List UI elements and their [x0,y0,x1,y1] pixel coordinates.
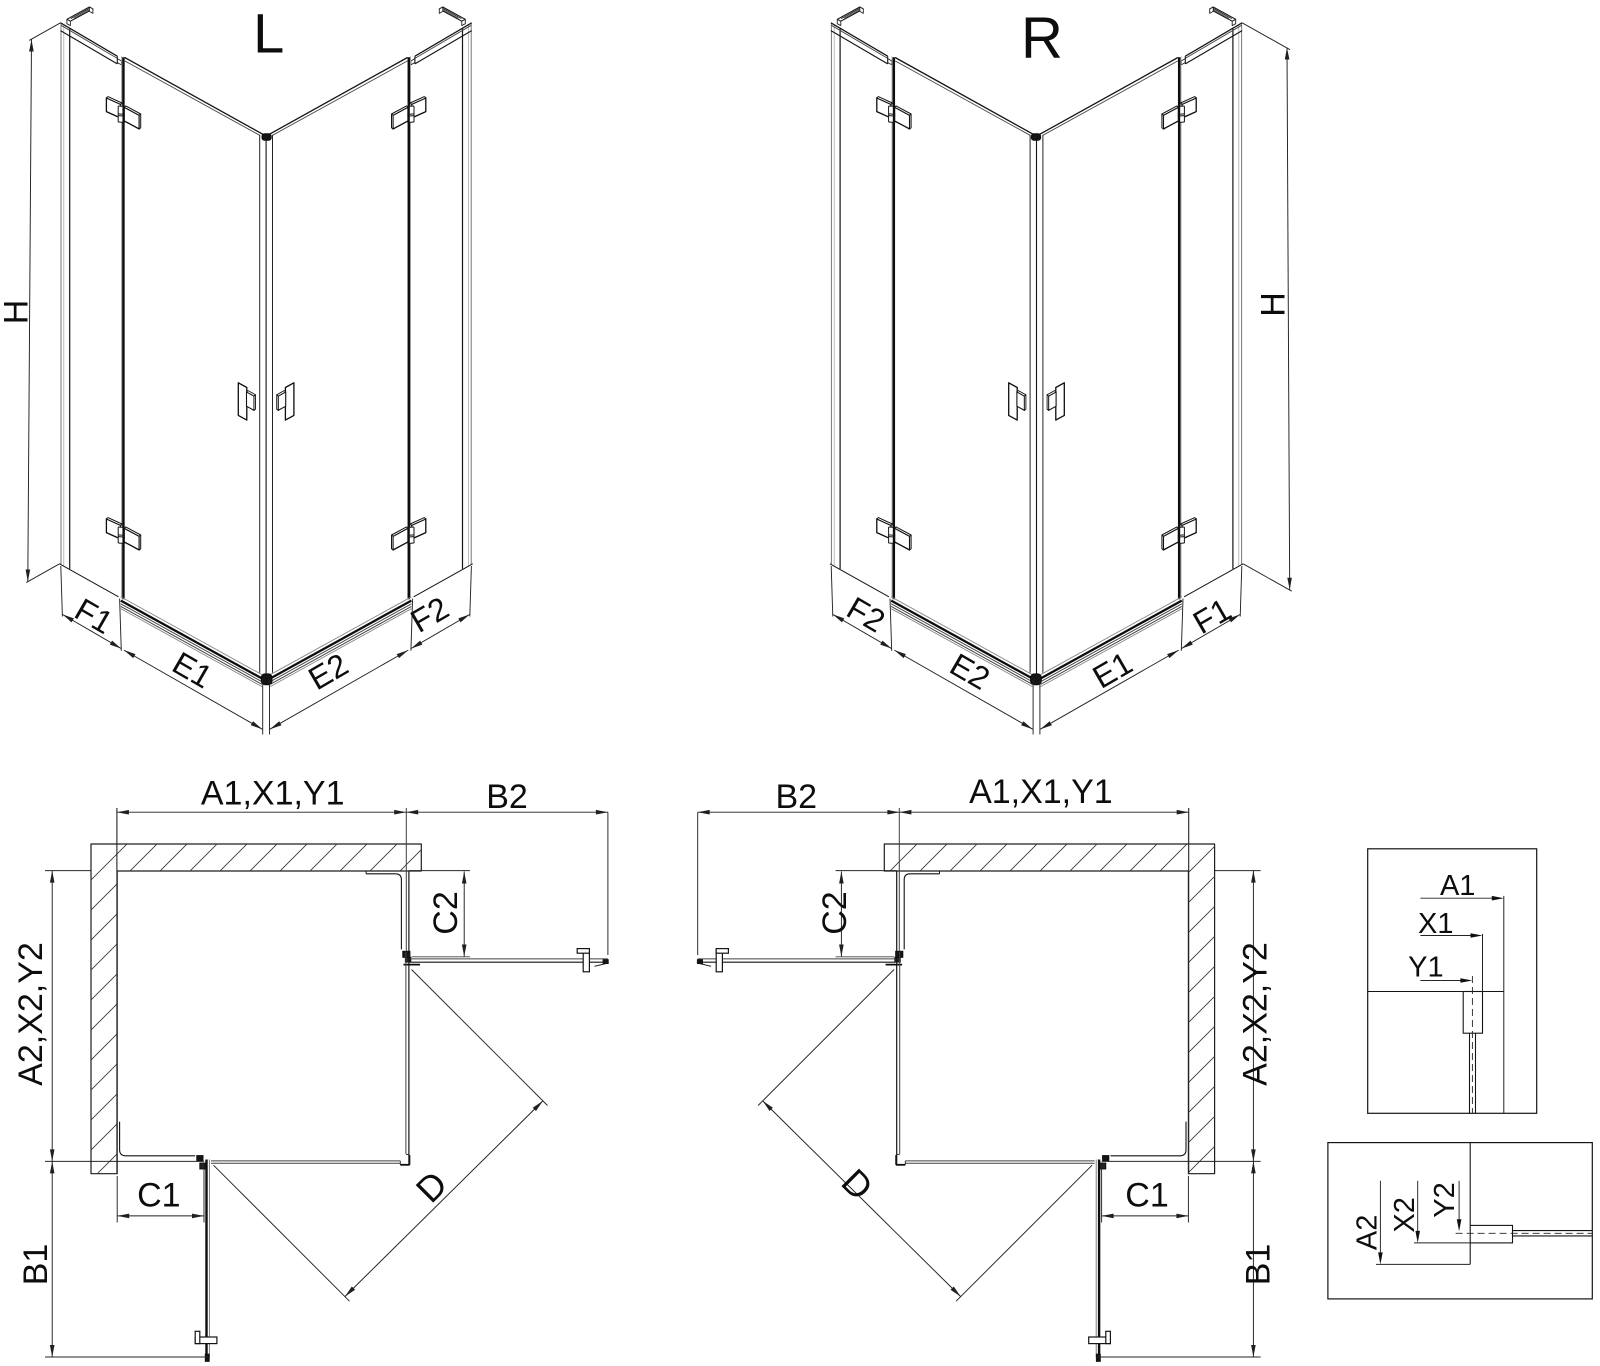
svg-text:A2,X2,Y2: A2,X2,Y2 [12,942,50,1086]
svg-text:C1: C1 [1125,1177,1168,1215]
svg-text:R: R [1021,6,1063,71]
svg-text:C1: C1 [137,1177,180,1215]
svg-text:Y1: Y1 [1408,952,1443,984]
svg-text:C2: C2 [427,891,465,934]
svg-text:Y2: Y2 [1429,1182,1461,1217]
svg-text:B1: B1 [17,1244,55,1286]
svg-text:X1: X1 [1418,908,1453,940]
svg-text:A1,X1,Y1: A1,X1,Y1 [969,773,1113,811]
svg-text:A1,X1,Y1: A1,X1,Y1 [201,775,345,813]
svg-text:A2: A2 [1351,1215,1383,1250]
svg-text:A2,X2,Y2: A2,X2,Y2 [1237,942,1275,1086]
svg-text:B2: B2 [486,778,528,816]
svg-text:X2: X2 [1389,1197,1421,1232]
svg-text:B2: B2 [776,778,818,816]
svg-text:H: H [0,300,36,325]
svg-text:L: L [253,2,284,65]
svg-text:B1: B1 [1240,1244,1278,1286]
svg-text:C2: C2 [816,891,854,934]
svg-text:A1: A1 [1440,870,1475,902]
svg-text:H: H [1255,292,1293,317]
